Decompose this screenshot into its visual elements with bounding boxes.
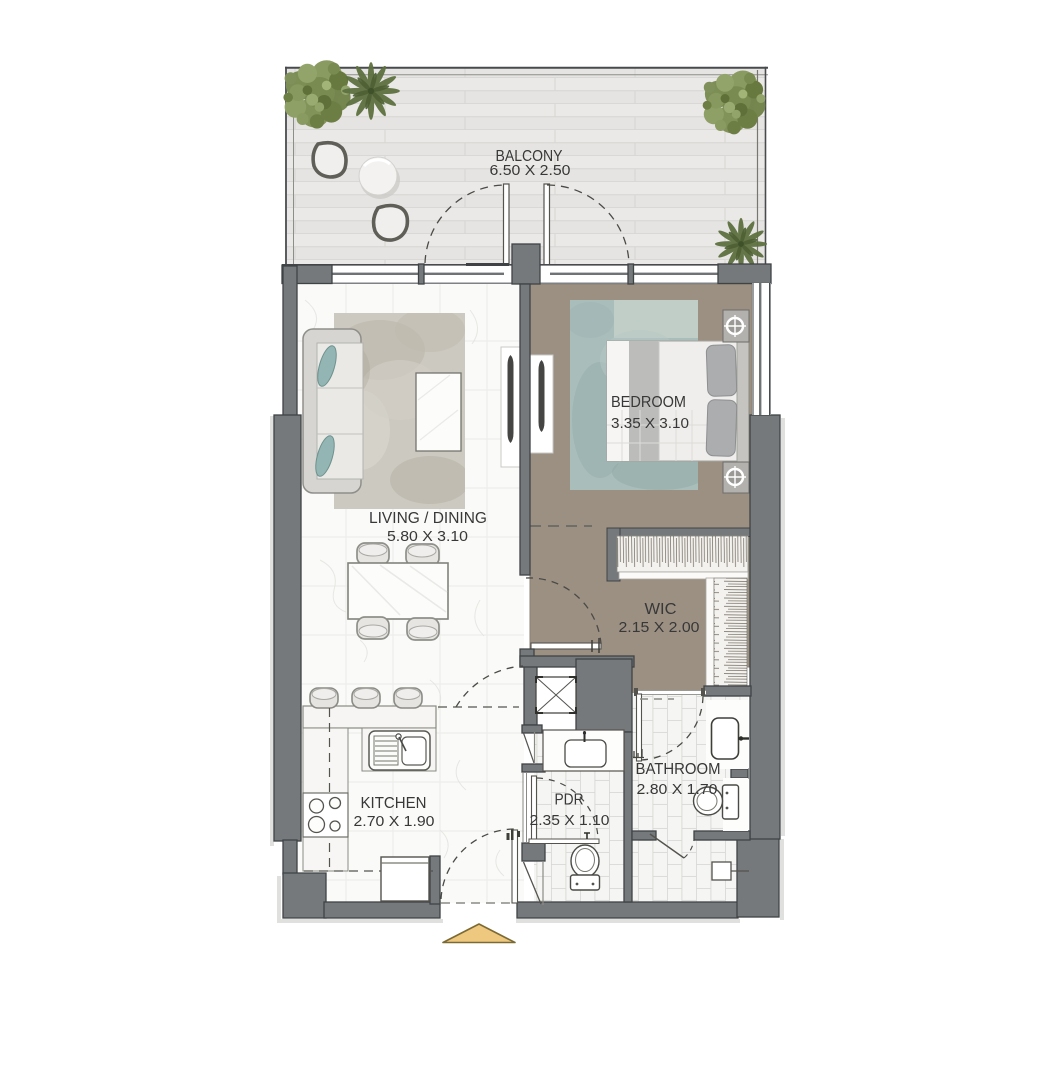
svg-text:WIC: WIC <box>645 601 677 618</box>
svg-text:2.80 X 1.70: 2.80 X 1.70 <box>637 781 718 798</box>
svg-text:3.35 X 3.10: 3.35 X 3.10 <box>611 415 689 432</box>
svg-text:5.80 X 3.10: 5.80 X 3.10 <box>387 528 468 545</box>
svg-text:BATHROOM: BATHROOM <box>636 761 721 778</box>
svg-text:BEDROOM: BEDROOM <box>611 394 686 411</box>
svg-text:KITCHEN: KITCHEN <box>361 795 427 812</box>
svg-text:2.35 X 1.10: 2.35 X 1.10 <box>530 812 610 829</box>
svg-text:2.15 X 2.00: 2.15 X 2.00 <box>619 619 700 636</box>
svg-text:PDR: PDR <box>555 792 584 809</box>
svg-text:LIVING / DINING: LIVING / DINING <box>369 510 487 527</box>
svg-text:2.70 X 1.90: 2.70 X 1.90 <box>354 813 435 830</box>
svg-text:6.50 X 2.50: 6.50 X 2.50 <box>490 162 571 179</box>
